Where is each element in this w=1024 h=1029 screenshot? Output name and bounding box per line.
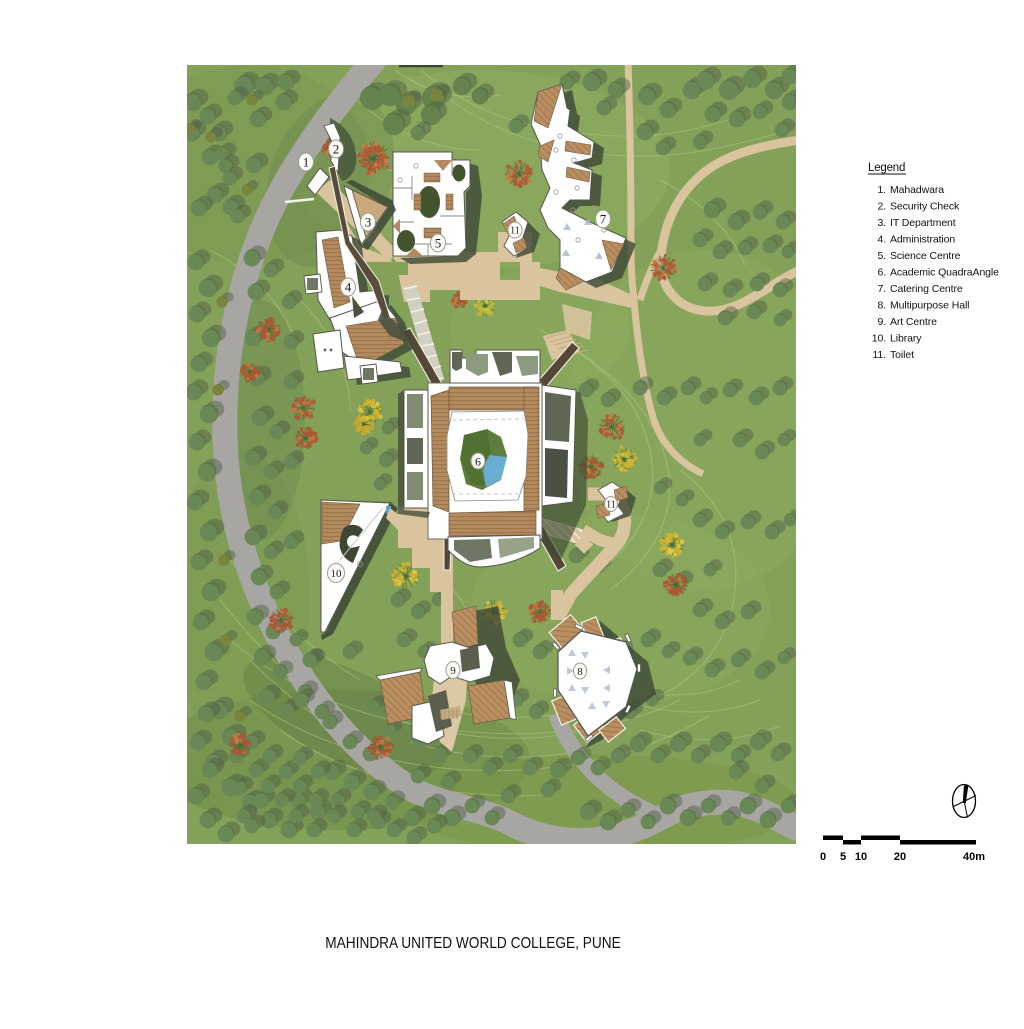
svg-text:10.: 10. <box>872 333 886 345</box>
svg-text:Catering Centre: Catering Centre <box>890 283 963 295</box>
svg-text:11.: 11. <box>872 349 886 361</box>
svg-text:Multipurpose Hall: Multipurpose Hall <box>890 300 969 312</box>
svg-text:1: 1 <box>303 155 310 170</box>
svg-text:Administration: Administration <box>890 234 955 246</box>
svg-text:0: 0 <box>820 851 826 863</box>
svg-text:MAHINDRA UNITED WORLD COLLEGE,: MAHINDRA UNITED WORLD COLLEGE, PUNE <box>325 935 621 952</box>
svg-text:40m: 40m <box>963 851 985 863</box>
svg-text:2.: 2. <box>877 201 886 213</box>
svg-text:6.: 6. <box>877 267 886 279</box>
svg-text:10: 10 <box>331 568 343 580</box>
svg-text:Library: Library <box>890 333 922 345</box>
svg-text:1.: 1. <box>877 184 886 196</box>
svg-text:7: 7 <box>600 212 607 227</box>
svg-text:Academic QuadraAngle: Academic QuadraAngle <box>890 267 999 279</box>
svg-text:Art Centre: Art Centre <box>890 316 937 328</box>
svg-text:5.: 5. <box>877 250 886 262</box>
svg-text:3: 3 <box>365 215 372 230</box>
svg-text:8.: 8. <box>877 300 886 312</box>
svg-text:11: 11 <box>510 226 520 237</box>
svg-text:4.: 4. <box>877 234 886 246</box>
svg-text:20: 20 <box>894 851 906 863</box>
svg-text:2: 2 <box>333 142 340 157</box>
svg-text:6: 6 <box>475 454 481 468</box>
svg-text:Science Centre: Science Centre <box>890 250 961 262</box>
svg-text:7.: 7. <box>877 283 886 295</box>
svg-text:8: 8 <box>577 666 583 678</box>
svg-text:3.: 3. <box>877 217 886 229</box>
svg-text:Security Check: Security Check <box>890 201 960 213</box>
svg-text:9: 9 <box>450 665 456 677</box>
svg-text:5: 5 <box>435 236 442 251</box>
svg-text:10: 10 <box>855 851 867 863</box>
svg-text:4: 4 <box>345 280 352 295</box>
svg-text:9.: 9. <box>877 316 886 328</box>
svg-text:IT Department: IT Department <box>890 217 956 229</box>
svg-text:11: 11 <box>606 500 616 511</box>
svg-text:Legend: Legend <box>868 162 905 174</box>
svg-text:Toilet: Toilet <box>890 349 914 361</box>
svg-text:5: 5 <box>840 851 846 863</box>
svg-text:Mahadwara: Mahadwara <box>890 184 944 196</box>
